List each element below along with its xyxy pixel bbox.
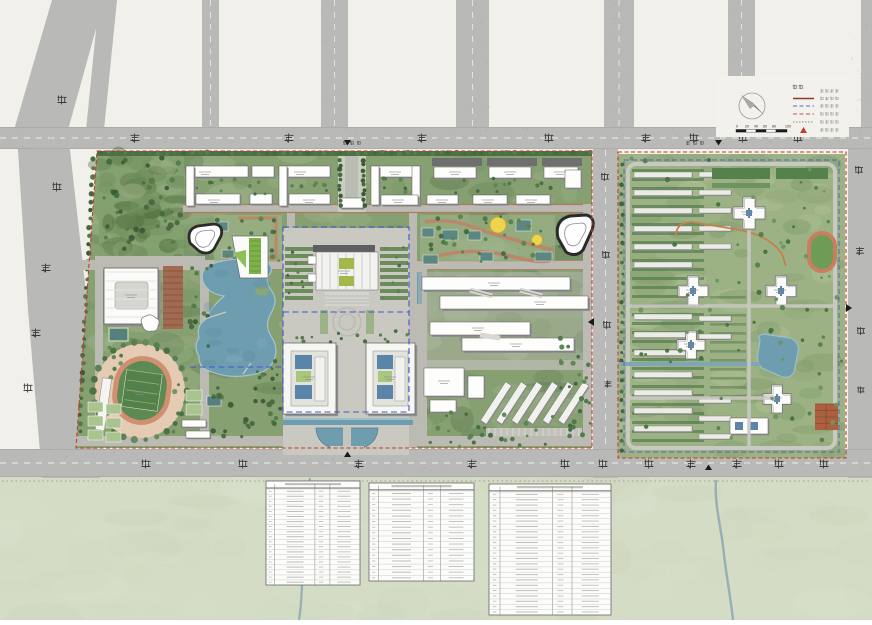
svg-text:60: 60 (763, 125, 767, 129)
svg-text:100: 100 (785, 125, 791, 129)
svg-text:40: 40 (754, 125, 758, 129)
svg-text:0: 0 (736, 125, 738, 129)
svg-text:80: 80 (772, 125, 776, 129)
svg-text:20: 20 (745, 125, 749, 129)
